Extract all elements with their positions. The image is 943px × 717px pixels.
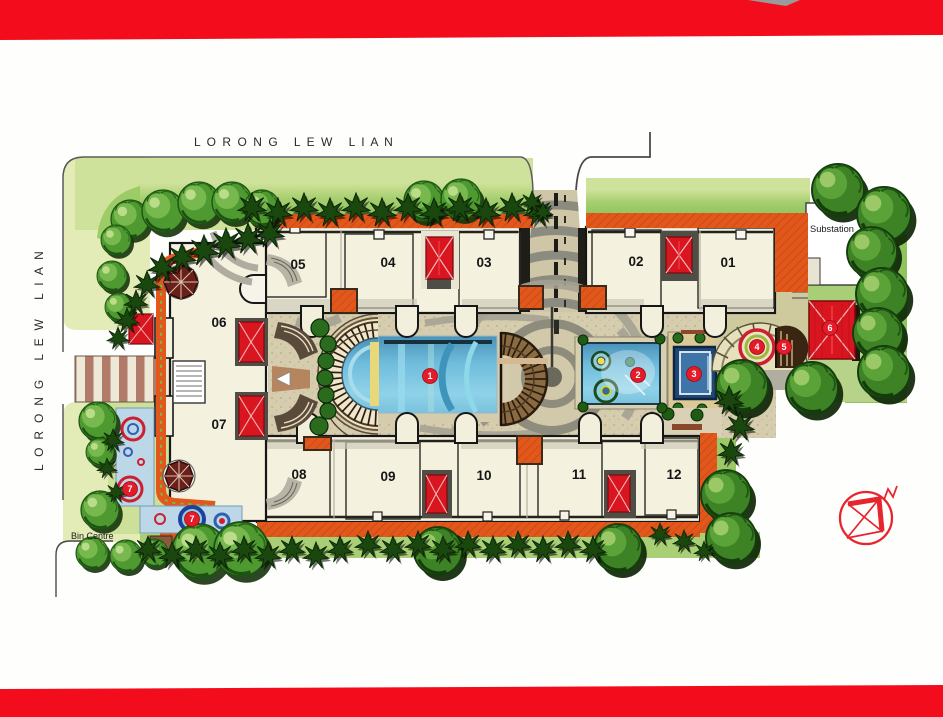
svg-text:08: 08 [291, 467, 307, 482]
svg-text:10: 10 [476, 468, 491, 483]
svg-text:03: 03 [476, 255, 492, 270]
svg-text:7: 7 [189, 514, 194, 524]
svg-text:12: 12 [666, 467, 681, 482]
svg-text:7: 7 [127, 484, 132, 494]
svg-text:1: 1 [427, 371, 432, 381]
svg-text:L O R O N G L E W L I A N: L O R O N G L E W L I A N [32, 249, 46, 471]
svg-text:06: 06 [211, 315, 227, 330]
svg-text:01: 01 [720, 255, 736, 270]
svg-text:Substation: Substation [810, 224, 854, 234]
svg-text:6: 6 [827, 323, 832, 333]
svg-text:11: 11 [572, 467, 587, 482]
svg-text:04: 04 [380, 255, 396, 270]
svg-text:05: 05 [290, 257, 306, 272]
svg-text:02: 02 [628, 254, 643, 269]
svg-text:4: 4 [754, 342, 759, 352]
svg-text:07: 07 [211, 417, 226, 432]
svg-text:L O R O N G L E W L I A N: L O R O N G L E W L I A N [194, 135, 394, 149]
svg-text:Bin Centre: Bin Centre [71, 531, 114, 541]
svg-text:3: 3 [691, 369, 696, 379]
svg-text:2: 2 [635, 370, 640, 380]
svg-text:5: 5 [781, 342, 786, 352]
svg-text:09: 09 [380, 469, 395, 484]
